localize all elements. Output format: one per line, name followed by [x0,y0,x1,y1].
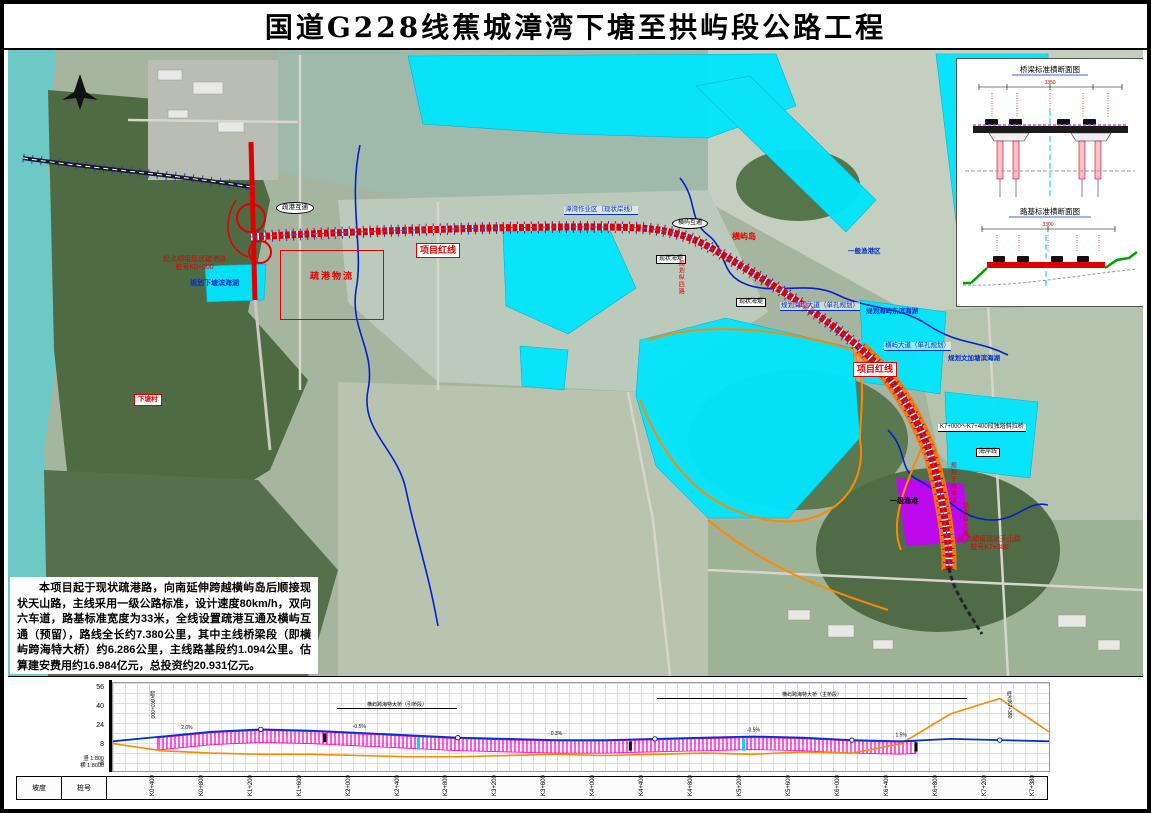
hengyu-road-label: 横屿大道（单孔规划） [884,342,951,351]
profile-panel: 5640248-8 竖 1:800横 1:8000 2.0%-0.5%0.3%-… [8,678,1151,809]
subgrade-section-title: 路基标准横断面图 [1020,206,1080,216]
lake-label-xiatang: 规划下塘滨海湖 [190,280,239,288]
profile-plot-area: 2.0%-0.5%0.3%-0.5%1.5% 横屿跨海特大桥（引桥段） 横屿跨海… [112,682,1050,772]
seawall-label-2: 现状海堤 [736,298,766,307]
svg-text:2.0%: 2.0% [181,725,193,731]
seawall-road-label: 规划海堤大道（单孔规划） [780,302,860,311]
svg-text:1.5%: 1.5% [895,732,907,738]
span-arrangement-label-2: 横屿跨海特大桥（主桥段） [657,691,967,699]
start-point-label: 起点顺接现状疏港路桩号K0+000 [163,256,226,273]
planned-road-z6-label: 规划纵六路 [960,502,967,537]
cross-section-drawing: 桥梁标准横断面图 3350 [957,59,1142,304]
span-arrangement-label-1: 横屿跨海特大桥（引桥段） [337,701,457,709]
cable-stayed-bridge-note: K7+000～K7+400段独塔斜拉桥 [938,424,1026,432]
subgrade-width-dim: 3300 [1042,222,1053,228]
bridge-section-title: 桥梁标准横断面图 [1020,64,1080,74]
bridge-width-dim: 3350 [1044,80,1055,86]
profile-end-label: 终点K7+380 [1006,691,1013,718]
svg-text:0.3%: 0.3% [551,731,563,737]
lake-label-east: 规划海屿东滨海湖 [866,308,918,316]
bridge-deck [973,126,1128,133]
workzone-label: 漳湾作业区（现状岸线） [564,206,638,215]
bridge-deck-hatch-band [157,730,916,754]
profile-scale-notes: 竖 1:800横 1:8000 [36,756,104,770]
strip-header-station: 桩号 [62,777,107,799]
svg-text:-0.5%: -0.5% [747,728,761,734]
island-label: 横屿岛 [732,232,756,242]
village-label: 下塘村 [134,394,162,406]
svg-text:-0.5%: -0.5% [353,724,367,730]
drawing-sheet: 国道G228线蕉城漳湾下塘至拱屿段公路工程 [0,0,1151,813]
project-description: 本项目起于现状疏港路，向南延伸跨越横屿岛后顺接现状天山路，主线采用一级公路标准，… [10,577,318,674]
vehicle-silhouettes [985,119,1096,125]
profile-y-axis [109,680,112,772]
logistics-zone-outline: 疏港物流 [280,250,384,320]
station-labels: K0+400K0+800K1+200K1+600K2+000K2+400K2+8… [107,777,1047,799]
station-strip: 坡度 桩号 K0+400K0+800K1+200K1+600K2+000K2+4… [16,776,1048,800]
project-redline-label-1: 项目红线 [416,243,460,258]
end-point-label: 终点顺接现状天山路桩号K7+380 [958,536,1021,553]
strip-header-grade: 坡度 [17,777,62,799]
bridge-piers [997,141,1101,179]
page-title: 国道G228线蕉城漳湾下塘至拱屿段公路工程 [265,6,886,46]
greenway-label: 规划干线绿道 [948,462,955,504]
interchange-label-shugang: 疏港互通 [276,202,314,214]
fishport-label: 一级渔港 [890,498,918,506]
profile-start-label: 起点K0+000 [149,691,156,718]
subgrade-embankment [987,262,1105,268]
planned-road-z4-label: 规划纵四路 [676,260,683,295]
logistics-zone-label: 疏港物流 [310,269,354,282]
project-redline-label-2: 项目红线 [853,362,897,377]
title-bar: 国道G228线蕉城漳湾下塘至拱屿段公路工程 [4,4,1147,50]
map-canvas: 起点顺接现状疏港路桩号K0+000 疏港互通 规划下塘滨海湖 疏港物流 项目红线… [8,50,1143,677]
cross-section-inset: 桥梁标准横断面图 3350 [956,58,1143,307]
lake-label-wenjiatang: 规划文加塘滨海湖 [948,355,1000,363]
fishport-zone-label: 一般渔港区 [848,248,881,256]
coastline-label: 海岸线 [976,448,1000,457]
